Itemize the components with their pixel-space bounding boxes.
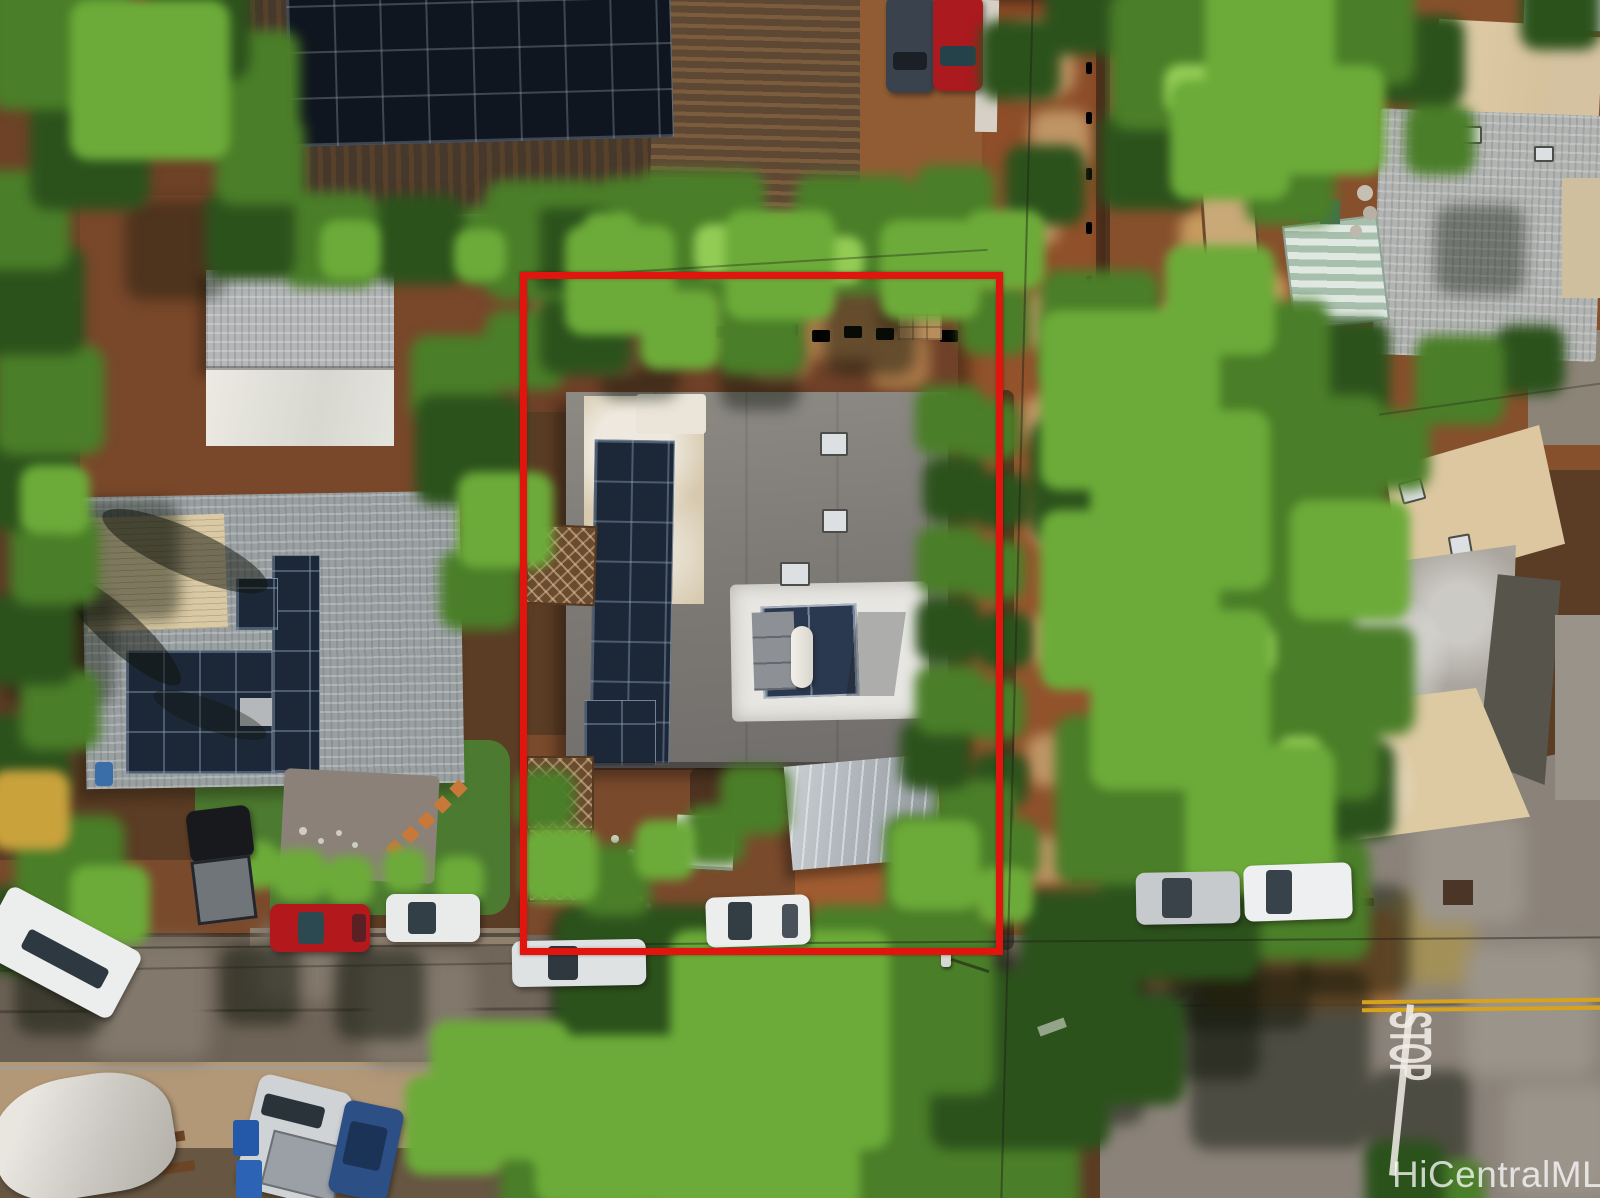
blue-barrel [95, 762, 113, 786]
shed-roof-divider [206, 366, 394, 370]
skylight [1458, 126, 1482, 144]
car-white-windshield [408, 902, 436, 934]
watermark: HiCentralMLS [1392, 1154, 1600, 1196]
roof-beige-right-edge [1562, 178, 1600, 298]
car-silver-right-windows [1162, 878, 1192, 918]
dark-mat [1443, 880, 1473, 905]
green-storage-bin [1320, 200, 1340, 224]
suv-white-right [1243, 862, 1353, 922]
fence-shadow-dirt-road [1096, 0, 1110, 340]
car-red-top-windshield [940, 46, 976, 66]
property-boundary-outline [520, 272, 1003, 955]
stop-road-marking: STOP [1378, 1006, 1440, 1084]
green-storage-bin [1297, 197, 1319, 223]
suv-white-right-windshield [1266, 870, 1292, 914]
car-red-rear-window [352, 914, 366, 942]
car-dark-top [886, 0, 934, 93]
blue-bins-bottom [236, 1160, 262, 1198]
solar-panel-array-top-left [286, 0, 674, 147]
truck-dark-left-bed [190, 855, 257, 926]
brown-fence-post [1080, 815, 1090, 875]
driveway-left-house [279, 768, 439, 884]
shed-roof-white-half [206, 368, 394, 446]
stop-road-marking-text: STOP [1375, 1010, 1443, 1079]
car-dark-top-windshield [893, 52, 927, 70]
roof-gray-right-strip [1555, 615, 1600, 800]
greenhouse-shed [1282, 215, 1390, 332]
shed-roof-gray-half [206, 270, 394, 370]
blue-bins-bottom [233, 1120, 259, 1156]
curb-line [0, 1066, 525, 1070]
solar-array-left-house-column [272, 555, 320, 773]
skylight [1534, 146, 1554, 162]
neighbor-roof-top-middle [649, 0, 895, 231]
car-red-windshield [298, 912, 324, 944]
garden-planter-box [1200, 184, 1261, 260]
aerial-photo-scene: STOP HiCentralMLS [0, 0, 1600, 1198]
